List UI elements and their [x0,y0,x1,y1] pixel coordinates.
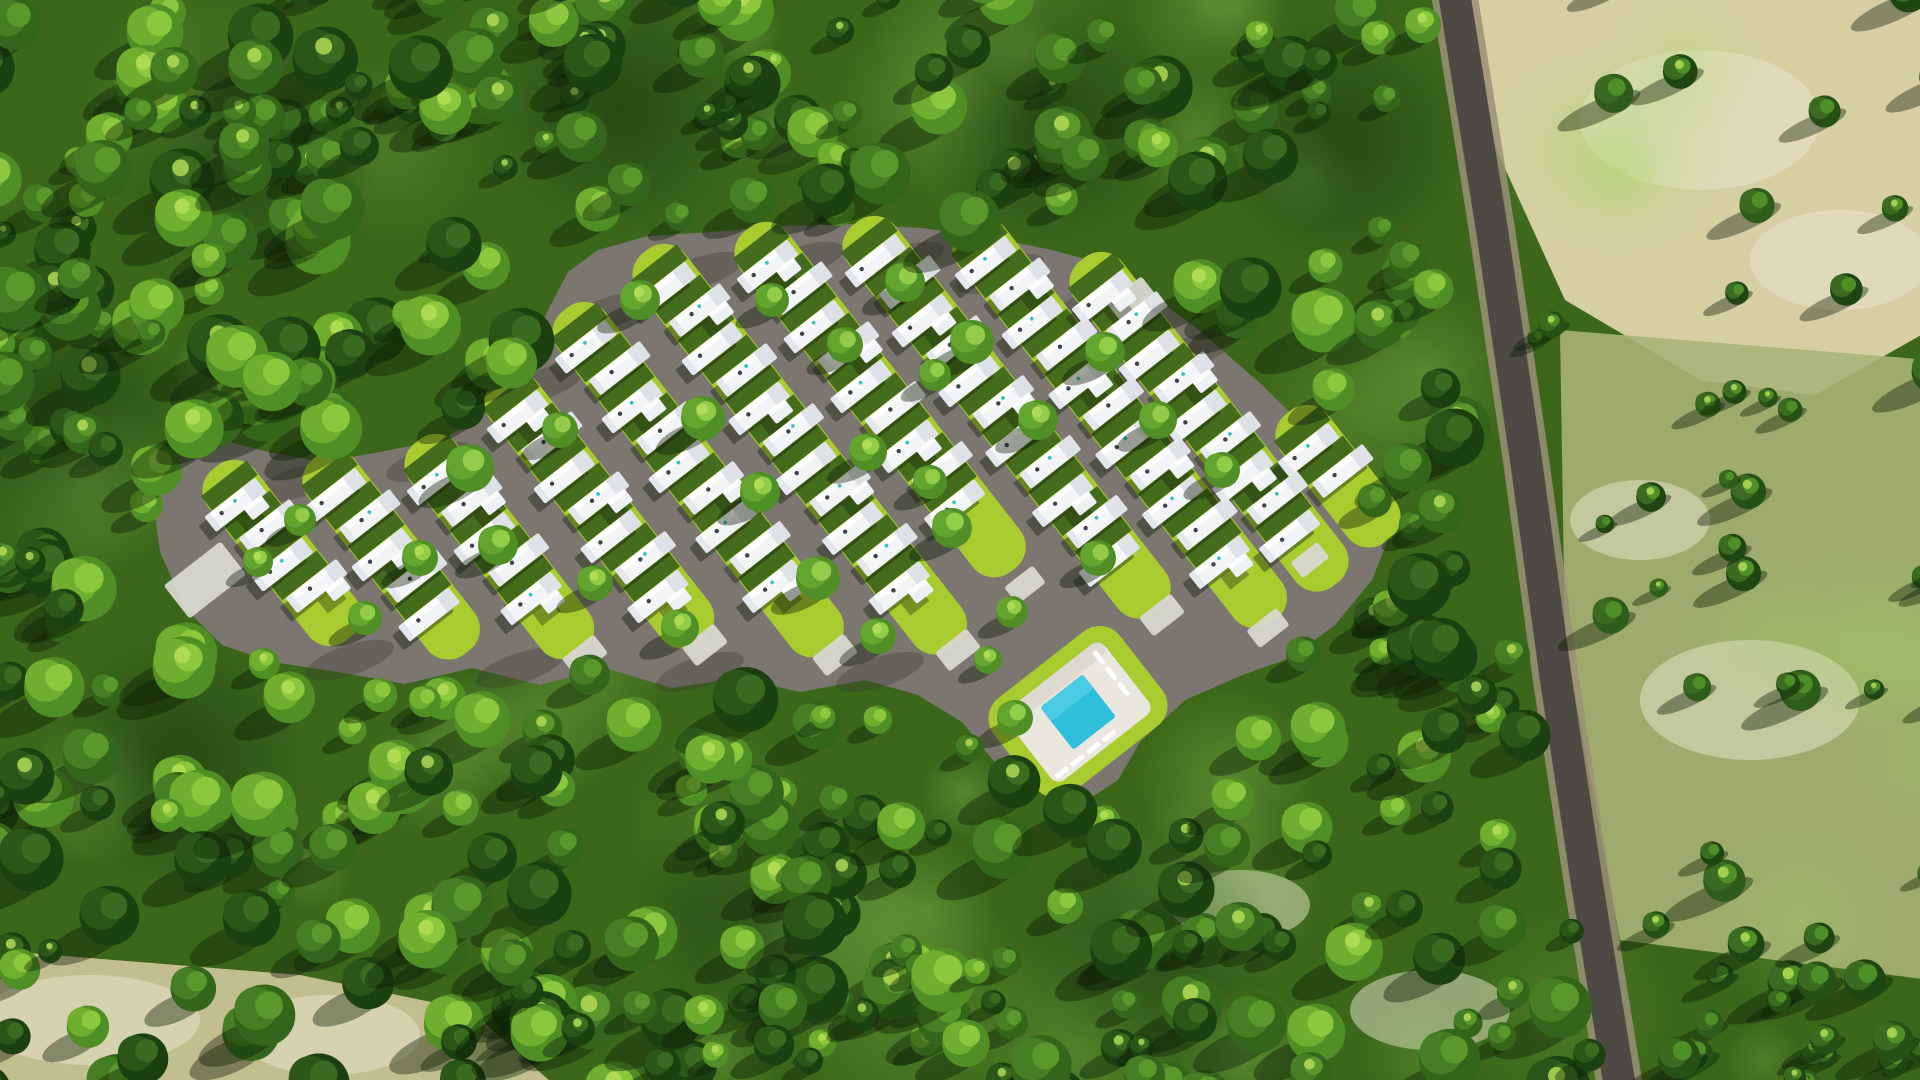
tree-crown-light [1320,252,1335,267]
tree-sunlit-top [492,82,504,94]
tree-sunlit-top [167,55,179,67]
tree-crown-light [1495,909,1516,930]
tree-sunlit-top [573,1018,582,1027]
tree-crown-light [1399,894,1416,911]
tree-sunlit-top [1820,1029,1828,1037]
tree-crown-light [323,183,352,212]
tree-sunlit-top [315,38,332,55]
tree-crown-light [1410,560,1439,589]
tree-crown-light [1327,373,1346,392]
tree-sunlit-top [421,755,434,768]
tree-crown-light [1728,537,1741,550]
tree-crown-light [1282,42,1307,67]
tree-crown-light [1733,284,1744,295]
tree-sunlit-top [704,105,711,112]
tree-crown-light [806,964,836,994]
tree-crown-light [1431,939,1454,962]
tree-crown-light [1197,918,1216,937]
tree-crown-light [146,11,172,37]
tree-sunlit-top [136,55,151,70]
tree-crown-light [1010,704,1026,720]
tree-crown-light [946,513,964,531]
tree-sunlit-top [281,680,294,693]
tree-crown-light [1435,373,1453,391]
aerial-park-render [0,0,1920,1080]
tree-sunlit-top [247,48,261,62]
tree-crown-light [21,834,50,863]
tree-sunlit-top [1743,480,1752,489]
tree-sunlit-top [836,859,849,872]
tree-sunlit-top [712,1046,719,1053]
tree-crown-light [1138,1059,1156,1077]
tree-crown-light [505,944,526,965]
tree-crown-light [529,751,552,774]
tree-crown-light [843,103,856,116]
tree-crown-light [1673,1041,1692,1060]
tree-crown-light [1188,1003,1208,1023]
tree-crown-light [1262,135,1287,160]
tree-sunlit-top [696,403,707,414]
tree-crown-light [928,58,945,75]
tree-crown-light [871,150,899,178]
tree-crown-light [1447,554,1463,570]
tree-crown-light [1785,675,1796,686]
tree-crown-light [82,1010,101,1029]
tree-crown-light [255,992,283,1020]
tree-crown-light [583,659,601,677]
tree-sunlit-top [1656,582,1661,587]
tree-crown-light [455,794,471,810]
tree-crown-light [6,272,36,302]
tree-sunlit-top [1434,495,1446,507]
tree-crown-light [1383,88,1395,100]
tree-crown-light [1446,415,1472,441]
tree-crown-light [1226,782,1245,801]
tree-crown-light [930,363,944,377]
tree-crown-light [45,664,72,691]
tree-sunlit-top [872,624,881,633]
tree-crown-light [1568,922,1579,933]
tree-sunlit-top [1192,268,1206,282]
tree-sunlit-top [836,22,843,29]
tree-crown-light [54,228,80,254]
tree-crown-light [474,698,499,723]
tree-sunlit-top [536,716,546,726]
tree-crown-light [1786,400,1797,411]
tree-crown-light [103,677,118,692]
tree-sunlit-top [1891,200,1898,207]
tree-crown-light [768,1029,786,1047]
tree-crown-light [295,508,309,522]
tree-crown-light [1099,337,1117,355]
tree-sunlit-top [253,552,261,560]
tree-crown-light [263,359,290,386]
tree-crown-light [7,1022,23,1038]
tree-crown-light [1241,264,1269,292]
tree-crown-light [1007,1010,1022,1025]
tree-sunlit-top [1652,916,1659,923]
tree-crown-light [973,961,985,973]
tree-crown-light [1841,277,1856,292]
tree-sunlit-top [77,420,88,431]
tree-crown-light [1693,676,1706,689]
tree-sunlit-top [1548,316,1555,323]
tree-sunlit-top [858,1003,867,1012]
tree-crown-light [411,43,440,72]
tree-crown-light [962,30,982,50]
tree-crown-light [1137,70,1155,88]
tree-crown-light [186,971,207,992]
tree-sunlit-top [1738,562,1747,571]
tree-sunlit-top [1646,487,1654,495]
tree-crown-light [1062,790,1086,814]
tree-sunlit-top [743,63,754,74]
tree-crown-light [136,100,151,115]
tree-sunlit-top [1100,811,1108,819]
tree-sunlit-top [1675,60,1684,69]
tree-crown-light [148,323,160,335]
tree-crown-light [1314,295,1343,324]
tree-sunlit-top [1740,932,1750,942]
tree-crown-light [820,170,844,194]
tree-crown-light [531,1010,557,1036]
render-viewport [0,0,1920,1080]
tree-sunlit-top [172,159,189,176]
tree-crown-light [819,827,840,848]
tree-crown-light [657,1052,673,1068]
tree-sunlit-top [1183,984,1199,1000]
tree-crown-light [204,246,220,262]
tree-sunlit-top [754,479,764,489]
tree-sunlit-top [581,995,598,1012]
tree-crown-light [355,75,367,87]
tree-crown-light [148,285,173,310]
tree-crown-light [1432,625,1459,652]
tree-sunlit-top [543,134,549,140]
tree-sunlit-top [1032,407,1042,417]
tree-sunlit-top [1731,384,1737,390]
tree-sunlit-top [818,1034,825,1041]
tree-crown-light [1003,949,1017,963]
tree-sunlit-top [984,651,991,658]
tree-crown-light [1307,1010,1333,1036]
tree-crown-light [1859,964,1878,983]
tree-sunlit-top [366,790,380,804]
tree-crown-light [453,883,481,911]
tree-crown-light [959,1025,980,1046]
tree-crown-light [767,287,782,302]
tree-crown-light [695,37,716,58]
tree-crown-light [420,689,434,703]
tree-sunlit-top [1345,933,1360,948]
tree-crown-light [874,709,887,722]
tree-crown-light [1428,273,1446,291]
tree-crown-light [1310,708,1335,733]
tree-crown-light [1400,449,1422,471]
tree-crown-light [1517,716,1540,739]
tree-crown-light [1377,757,1390,770]
tree-sunlit-top [414,546,423,555]
tree-sunlit-top [634,287,644,297]
tree-sunlit-top [175,199,190,214]
tree-sunlit-top [998,1068,1006,1076]
tree-crown-light [736,675,765,704]
tree-sunlit-top [1364,897,1374,907]
tree-crown-light [990,993,1001,1004]
tree-crown-light [1391,798,1405,812]
tree-crown-light [811,561,831,581]
tree-crown-light [1099,22,1115,38]
tree-crown-light [1315,104,1326,115]
tree-crown-light [1709,844,1720,855]
tree-sunlit-top [1718,867,1729,878]
tree-sunlit-top [1006,764,1020,778]
tree-crown-light [83,733,109,759]
tree-sunlit-top [1765,391,1770,396]
tree-crown-light [375,682,390,697]
tree-crown-light [1438,712,1459,733]
tree-crown-light [626,703,651,728]
tree-crown-light [1093,544,1109,560]
tree-sunlit-top [674,615,684,625]
tree-crown-light [445,1001,472,1028]
tree-crown-light [255,99,276,120]
tree-crown-light [840,331,856,347]
tree-sunlit-top [387,749,401,763]
tree-crown-light [1820,99,1834,113]
tree-crown-light [1060,892,1076,908]
tree-sunlit-top [1138,1039,1144,1045]
tree-crown-light [1275,932,1290,947]
tree-sunlit-top [418,920,433,935]
tree-sunlit-top [259,653,267,661]
tree-sunlit-top [46,943,52,949]
tree-crown-light [1605,601,1622,618]
tree-sunlit-top [1255,25,1262,32]
tree-crown-light [1299,808,1322,831]
tree-crown-light [1440,1036,1468,1064]
tree-crown-light [805,899,834,928]
tree-crown-light [1220,827,1241,848]
tree-crown-light [1432,795,1447,810]
tree-crown-light [251,11,281,41]
tree-crown-light [228,332,256,360]
tree-crown-light [1313,844,1326,857]
tree-crown-light [492,530,510,548]
tree-sunlit-top [17,757,32,772]
tree-crown-light [925,469,940,484]
tree-crown-light [353,131,371,149]
tree-crown-light [530,869,559,898]
tree-crown-light [1373,24,1388,39]
tree-crown-light [775,988,797,1010]
tree-crown-light [1248,1000,1275,1027]
tree-crown-light [30,340,45,355]
tree-crown-light [567,934,584,951]
tree-crown-light [965,325,985,345]
tree-crown-light [1370,487,1385,502]
tree-crown-light [1251,720,1272,741]
tree-crown-light [746,181,767,202]
tree-sunlit-top [965,739,972,746]
tree-crown-light [300,363,322,385]
tree-crown-light [1122,992,1135,1005]
tree-crown-light [623,923,648,948]
tree-sunlit-top [174,647,190,663]
tree-crown-light [584,41,610,67]
tree-crown-light [100,893,127,920]
tree-crown-light [344,905,369,930]
tree-sunlit-top [1887,1027,1898,1038]
tree-crown-light [135,1039,158,1062]
tree-crown-light [466,35,493,62]
tree-sunlit-top [6,939,16,949]
tree-crown-light [1078,139,1099,160]
tree-sunlit-top [1114,1035,1124,1045]
tree-sunlit-top [1232,910,1245,923]
tree-crown-light [1106,825,1131,850]
tree-sunlit-top [716,809,728,821]
tree-sunlit-top [698,1002,708,1012]
tree-crown-light [1315,50,1330,65]
tree-crown-light [322,404,350,432]
tree-sunlit-top [1371,308,1384,321]
tree-crown-light [820,708,831,719]
tree-crown-light [312,923,332,943]
tree-sunlit-top [421,305,437,321]
tree-sunlit-top [770,55,776,61]
tree-crown-light [1183,933,1197,947]
tree-sunlit-top [1871,683,1876,688]
tree-crown-light [243,896,269,922]
tree-crown-light [635,994,650,1009]
tree-sunlit-top [702,742,715,755]
tree-crown-light [485,838,507,860]
tree-sunlit-top [1417,13,1426,22]
tree-crown-light [1217,456,1233,472]
tree-crown-light [58,593,76,611]
tree-sunlit-top [1152,134,1163,145]
tree-crown-light [1152,405,1169,422]
tree-sunlit-top [1791,1070,1797,1076]
tree-crown-light [343,335,366,358]
tree-sunlit-top [501,159,508,166]
tree-sunlit-top [162,804,171,813]
tree-sunlit-top [26,552,34,560]
tree-crown-light [74,563,104,593]
tree-crown-light [1752,192,1768,208]
tree-crown-light [1585,1043,1600,1058]
tree-crown-light [806,1050,818,1062]
tree-sunlit-top [1304,1059,1315,1070]
tree-crown-light [191,777,220,806]
tree-sunlit-top [1507,644,1516,653]
tree-sunlit-top [437,684,448,695]
tree-crown-light [7,3,31,27]
tree-crown-light [360,605,375,620]
tree-crown-light [892,855,909,872]
tree-crown-light [901,938,915,952]
tree-crown-light [279,324,308,353]
tree-crown-light [72,263,91,282]
tree-sunlit-top [1471,681,1481,691]
tree-crown-light [859,800,880,821]
tree-crown-light [735,930,755,950]
tree-crown-light [675,205,688,218]
tree-sunlit-top [185,409,200,424]
tree-crown-light [1811,966,1829,984]
tree-sunlit-top [1783,968,1794,979]
tree-sunlit-top [1704,396,1711,403]
tree-crown-light [894,808,916,830]
tree-sunlit-top [589,571,598,580]
tree-crown-light [276,144,294,162]
tree-crown-light [101,436,117,452]
tree-crown-light [832,788,848,804]
tree-sunlit-top [862,439,872,449]
tree-sunlit-top [1508,981,1517,990]
tree-crown-light [1776,992,1786,1002]
tree-crown-light [1189,158,1216,185]
tree-crown-light [463,450,485,472]
tree-crown-light [623,167,643,187]
tree-crown-light [961,197,989,225]
tree-crown-light [4,666,22,684]
tree-crown-light [799,861,822,884]
tree-crown-light [1551,983,1579,1011]
tree-crown-light [934,823,946,835]
tree-crown-light [92,789,108,805]
tree-sunlit-top [236,129,249,142]
tree-crown-light [1298,640,1314,656]
tree-sunlit-top [1007,601,1015,609]
tree-crown-light [504,343,527,366]
tree-crown-light [1498,1025,1511,1038]
tree-crown-light [326,829,347,850]
tree-crown-light [1705,1012,1718,1025]
tree-sunlit-top [1492,825,1501,834]
tree-crown-light [1815,926,1829,940]
tree-crown-light [94,147,120,173]
tree-crown-light [1402,244,1419,261]
tree-crown-light [1608,78,1626,96]
tree-crown-light [560,833,577,850]
tree-crown-light [555,416,571,432]
tree-crown-light [1602,517,1610,525]
tree-crown-light [1032,1042,1060,1070]
tree-crown-light [446,223,471,248]
tree-sunlit-top [487,14,499,26]
tree-sunlit-top [1464,1013,1472,1021]
tree-crown-light [574,117,597,140]
tree-crown-light [479,248,500,269]
tree-crown-light [221,218,246,243]
tree-crown-light [1494,852,1513,871]
tree-crown-light [752,121,767,136]
tree-crown-light [254,779,283,808]
page: { "scene_type": "aerial-3d-render", "sub… [0,0,1920,1080]
tree-sunlit-top [1054,116,1069,131]
tree-crown-light [1725,472,1733,480]
tree-crown-light [748,771,773,796]
tree-crown-light [1378,219,1391,232]
